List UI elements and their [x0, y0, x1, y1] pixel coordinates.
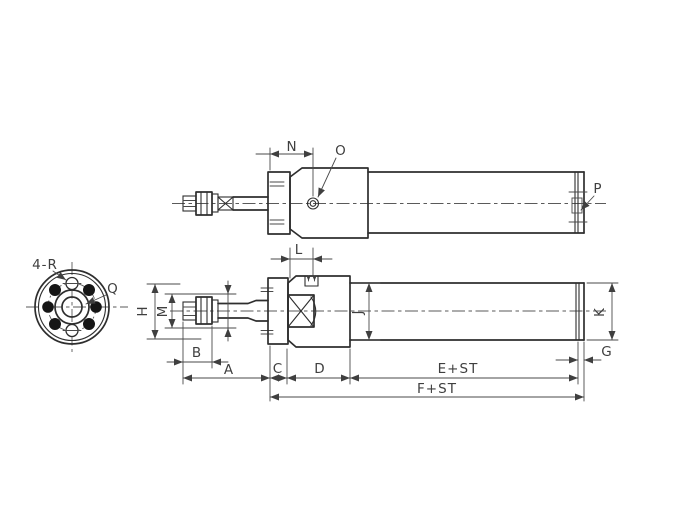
dim-label-p: P [593, 181, 602, 197]
rear-port-hidden [572, 198, 582, 213]
dim-label-k: K [592, 307, 608, 317]
dim-label-f-st: F+ST [417, 381, 457, 397]
dim-label-j: J [350, 310, 366, 316]
dim-chain: A C D E+ST [183, 342, 578, 401]
tie-rod-hole-right [91, 302, 102, 313]
dim-label-o: O [335, 143, 347, 159]
head-block [288, 276, 350, 347]
rod-collar [212, 194, 218, 212]
dim-j: J [350, 283, 380, 340]
drawing-sheet: 4-R Q [0, 0, 700, 525]
tie-rod-hole-se [84, 319, 95, 330]
dim-label-n: N [286, 139, 297, 155]
dim-label-h: H [135, 305, 151, 316]
dim-label-c: C [273, 361, 283, 377]
front-flange [268, 172, 290, 234]
tie-rod-hole-nw [50, 285, 61, 296]
dim-label-q: Q [107, 281, 119, 297]
cylinder-technical-drawing: 4-R Q [0, 0, 700, 525]
dim-label-b: B [192, 345, 202, 361]
dim-label-e-st: E+ST [438, 361, 479, 377]
leader-o: O [318, 143, 347, 197]
dim-label-d: D [314, 361, 325, 377]
head-block [290, 168, 368, 238]
top-side-view: N O P [172, 139, 606, 238]
dim-label-m: M [155, 305, 171, 318]
leader-4r: 4-R [32, 257, 66, 280]
top-port-notch [305, 276, 318, 286]
dim-k: K [587, 283, 618, 340]
tie-rod-hole-left [43, 302, 54, 313]
tie-rod-hole-sw [50, 319, 61, 330]
dim-b: B [167, 322, 228, 384]
tie-rod-hole-ne [84, 285, 95, 296]
dim-label-4r: 4-R [32, 257, 58, 273]
end-view: 4-R Q [26, 257, 128, 352]
dim-label-a: A [224, 362, 234, 378]
piston-rod-bottom [218, 318, 268, 321]
dim-l: L [271, 242, 332, 278]
rod-nut [196, 297, 212, 324]
dim-label-l: L [295, 242, 304, 258]
piston-rod-top [218, 301, 268, 304]
dim-label-g: G [601, 344, 612, 360]
bottom-side-view: L H M J [135, 242, 618, 401]
